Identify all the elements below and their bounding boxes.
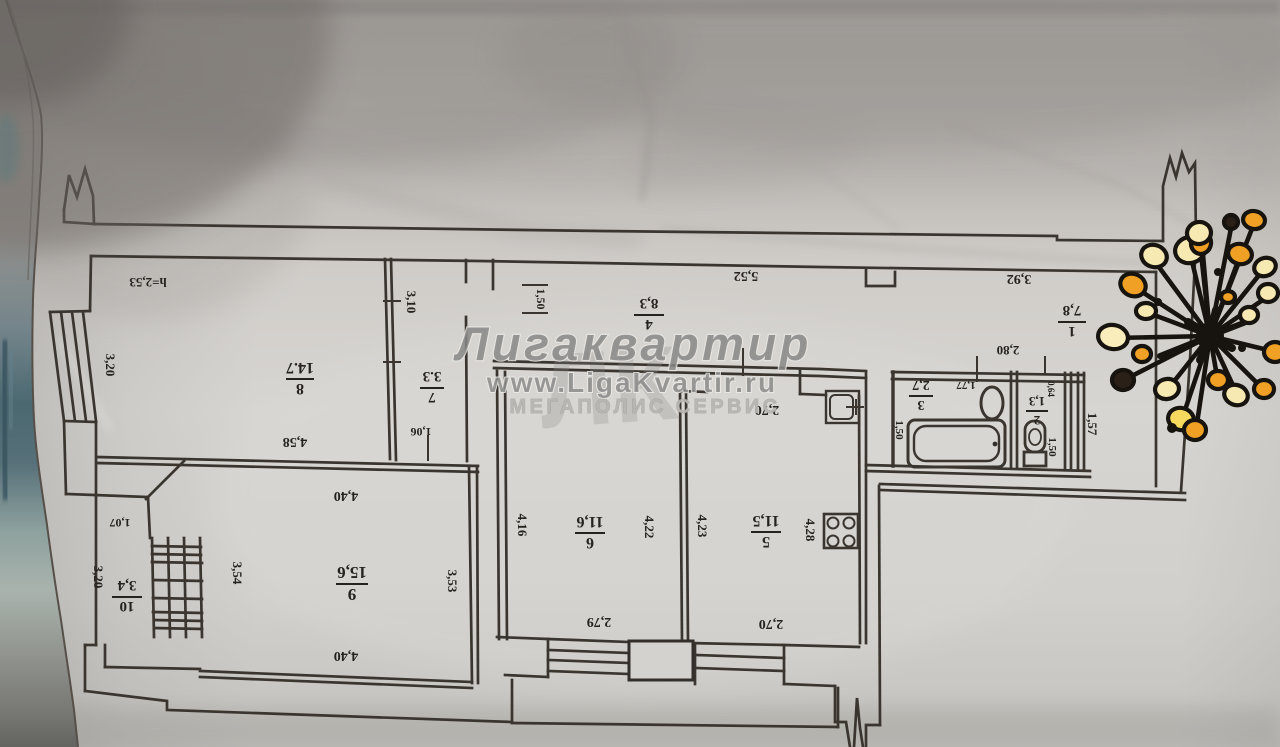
svg-text:2,70: 2,70 bbox=[759, 616, 784, 631]
svg-text:4,28: 4,28 bbox=[803, 519, 818, 542]
svg-text:9: 9 bbox=[348, 585, 357, 604]
svg-text:11,5: 11,5 bbox=[752, 512, 779, 529]
svg-text:3.3: 3.3 bbox=[423, 368, 442, 384]
svg-text:4,40: 4,40 bbox=[334, 488, 359, 503]
svg-text:2: 2 bbox=[1034, 413, 1041, 428]
svg-text:7: 7 bbox=[428, 389, 436, 405]
svg-text:8: 8 bbox=[296, 380, 304, 397]
svg-text:4,58: 4,58 bbox=[283, 434, 308, 449]
svg-text:1,06: 1,06 bbox=[411, 425, 432, 439]
svg-text:8,3: 8,3 bbox=[640, 295, 659, 311]
svg-text:15,6: 15,6 bbox=[337, 563, 367, 582]
svg-text:6: 6 bbox=[586, 534, 594, 551]
svg-text:2,7: 2,7 bbox=[912, 377, 930, 392]
svg-text:1,3: 1,3 bbox=[1028, 394, 1045, 409]
svg-text:Лигаквартир: Лигаквартир bbox=[453, 317, 812, 370]
svg-text:1,50: 1,50 bbox=[1046, 437, 1058, 457]
svg-text:2,80: 2,80 bbox=[997, 343, 1020, 358]
svg-text:1,77: 1,77 bbox=[956, 379, 976, 391]
svg-text:14.7: 14.7 bbox=[286, 359, 314, 376]
svg-text:2,79: 2,79 bbox=[587, 614, 612, 629]
svg-text:3,4: 3,4 bbox=[117, 577, 136, 593]
svg-text:10: 10 bbox=[120, 598, 135, 614]
svg-text:4,23: 4,23 bbox=[695, 515, 710, 538]
svg-text:5,52: 5,52 bbox=[734, 268, 759, 283]
svg-text:3,92: 3,92 bbox=[1007, 271, 1032, 286]
svg-text:7,8: 7,8 bbox=[1063, 302, 1082, 318]
svg-text:3,20: 3,20 bbox=[91, 566, 106, 589]
svg-text:4,16: 4,16 bbox=[515, 514, 530, 537]
svg-text:1,57: 1,57 bbox=[1085, 413, 1100, 436]
svg-text:3: 3 bbox=[918, 397, 925, 412]
svg-text:0,64: 0,64 bbox=[1046, 381, 1056, 397]
svg-text:1,50: 1,50 bbox=[534, 289, 548, 310]
svg-text:4,22: 4,22 bbox=[642, 516, 657, 539]
svg-text:3,54: 3,54 bbox=[230, 562, 245, 585]
svg-text:3,20: 3,20 bbox=[103, 354, 118, 377]
svg-text:1,07: 1,07 bbox=[110, 516, 131, 530]
svg-text:h=2,53: h=2,53 bbox=[129, 275, 167, 290]
svg-text:3,10: 3,10 bbox=[404, 291, 419, 314]
svg-text:3,53: 3,53 bbox=[445, 570, 460, 593]
svg-text:4,40: 4,40 bbox=[334, 648, 359, 663]
svg-text:5: 5 bbox=[762, 533, 770, 550]
svg-text:11,6: 11,6 bbox=[576, 513, 603, 530]
svg-text:МЕГАПОЛИС СЕРВИС: МЕГАПОЛИС СЕРВИС bbox=[510, 396, 781, 418]
svg-text:1: 1 bbox=[1068, 323, 1076, 339]
svg-text:www.LigaKvartir.ru: www.LigaKvartir.ru bbox=[486, 367, 777, 398]
svg-text:1,50: 1,50 bbox=[893, 420, 905, 440]
